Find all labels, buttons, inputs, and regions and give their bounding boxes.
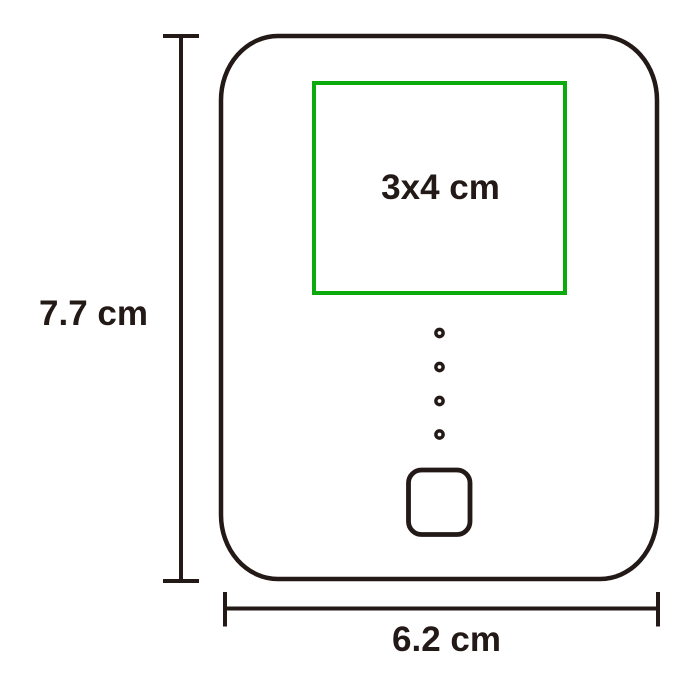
svg-text:3x4 cm: 3x4 cm [381,168,500,207]
svg-text:6.2 cm: 6.2 cm [392,620,501,659]
svg-text:7.7 cm: 7.7 cm [39,294,148,333]
